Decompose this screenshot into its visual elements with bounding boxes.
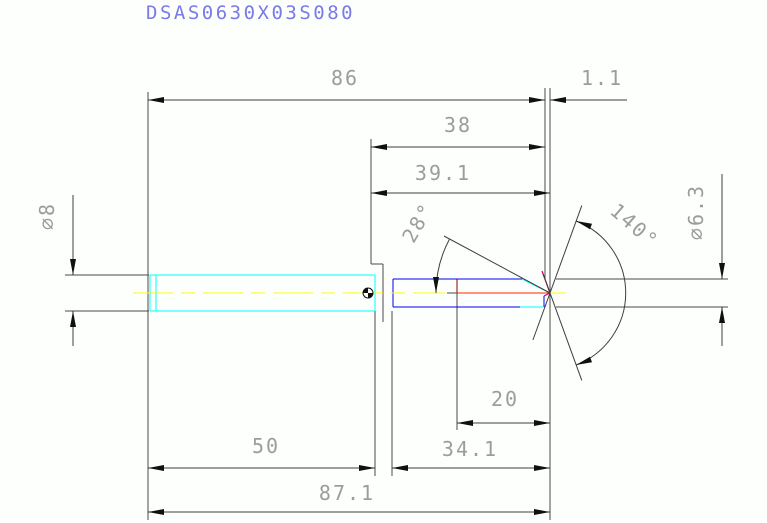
dimension-value-39-1: 39.1	[415, 161, 471, 185]
dimension-value-20: 20	[491, 387, 519, 411]
cad-drawing-page: DSAS0630X03S080	[0, 0, 767, 523]
dimension-value-87-1: 87.1	[319, 481, 375, 505]
drawing-title: DSAS0630X03S080	[146, 2, 355, 24]
drawing-background	[0, 0, 767, 523]
dimension-value-38: 38	[444, 113, 472, 137]
dimension-value-dia8: ⌀8	[35, 202, 59, 230]
technical-drawing-canvas: DSAS0630X03S080	[0, 0, 767, 523]
dimension-value-34-1: 34.1	[442, 437, 498, 461]
dimension-value-86: 86	[331, 66, 359, 90]
dimension-value-dia6-3: ⌀6.3	[684, 184, 708, 240]
center-point-marker	[363, 288, 373, 298]
dimension-value-50: 50	[252, 434, 280, 458]
dimension-value-1-1: 1.1	[581, 66, 623, 90]
